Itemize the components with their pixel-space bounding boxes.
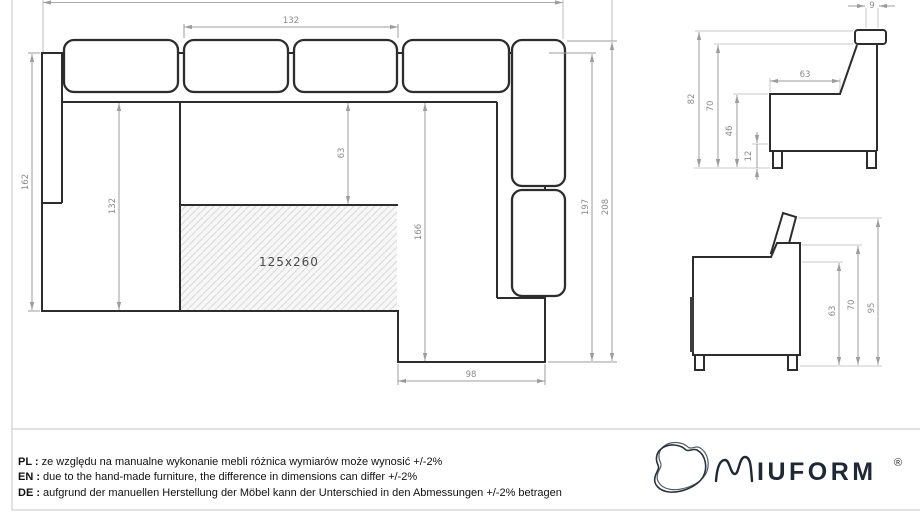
note-de-label: DE : bbox=[18, 487, 40, 499]
side-view-upper: 82 70 46 12 63 9 bbox=[687, 1, 895, 180]
legs bbox=[695, 355, 797, 370]
dim-label-208: 208 bbox=[601, 199, 611, 215]
right-leg bbox=[788, 355, 797, 370]
note-en: EN :due to the hand-made furniture, the … bbox=[18, 470, 562, 485]
right-back-cushion-1 bbox=[512, 40, 565, 186]
note-en-text: due to the hand-made furniture, the diff… bbox=[43, 471, 417, 483]
top-view: 125x260 bbox=[21, 0, 617, 385]
registered-mark: ® bbox=[894, 457, 902, 469]
dim-label-98: 98 bbox=[466, 370, 477, 380]
brand-logo: IUFORM ® bbox=[646, 436, 914, 496]
dimension-seat-width-132 bbox=[184, 24, 398, 38]
headrest-lip bbox=[855, 30, 886, 44]
back-cushion-3 bbox=[294, 40, 397, 92]
dim-label-12: 12 bbox=[744, 151, 754, 162]
dim-label-63-side: 63 bbox=[800, 70, 811, 80]
dim-label-9: 9 bbox=[869, 1, 874, 11]
brand-name: IUFORM bbox=[757, 458, 877, 486]
dim-label-46: 46 bbox=[725, 126, 735, 137]
dim-label-82: 82 bbox=[687, 94, 697, 105]
back-cushion-1 bbox=[64, 40, 178, 92]
sleep-area-label: 125x260 bbox=[259, 255, 319, 269]
dim-label-95-lower: 95 bbox=[867, 303, 877, 314]
front-leg bbox=[773, 151, 782, 168]
dim-label-132-top: 132 bbox=[283, 16, 299, 26]
side-view-lower: 63 70 95 bbox=[690, 213, 882, 370]
dim-label-162: 162 bbox=[21, 174, 31, 190]
wave-m-icon bbox=[716, 457, 752, 481]
note-de: DE :aufgrund der manuellen Herstellung d… bbox=[18, 486, 562, 501]
note-pl-label: PL : bbox=[18, 456, 39, 468]
dim-label-132-left: 132 bbox=[108, 198, 118, 214]
back-leg bbox=[867, 151, 876, 168]
dimension-sheet: 125x260 bbox=[0, 0, 920, 520]
dim-label-70-lower: 70 bbox=[847, 300, 857, 311]
note-en-label: EN : bbox=[18, 471, 40, 483]
armrest-body bbox=[693, 243, 800, 355]
side-handle-strip bbox=[690, 297, 694, 352]
back-cushion-2 bbox=[184, 40, 288, 92]
back-cushion-4 bbox=[403, 40, 509, 92]
extension-lines bbox=[694, 8, 878, 168]
left-leg bbox=[695, 355, 704, 370]
extension-lines bbox=[798, 218, 882, 366]
sofa-profile bbox=[770, 30, 886, 168]
dim-label-197: 197 bbox=[581, 199, 591, 215]
dim-label-70: 70 bbox=[706, 101, 716, 112]
note-de-text: aufgrund der manuellen Herstellung der M… bbox=[43, 487, 562, 499]
dim-label-166: 166 bbox=[414, 224, 424, 240]
dim-label-63-seat: 63 bbox=[337, 148, 347, 159]
note-pl-text: ze względu na manualne wykonanie mebli r… bbox=[42, 456, 443, 468]
dim-label-63-lower: 63 bbox=[828, 306, 838, 317]
bean-icon bbox=[655, 442, 709, 492]
note-pl: PL :ze względu na manualne wykonanie meb… bbox=[18, 455, 562, 470]
disclaimer-notes: PL :ze względu na manualne wykonanie meb… bbox=[18, 455, 562, 501]
right-back-cushion-2 bbox=[512, 190, 565, 296]
